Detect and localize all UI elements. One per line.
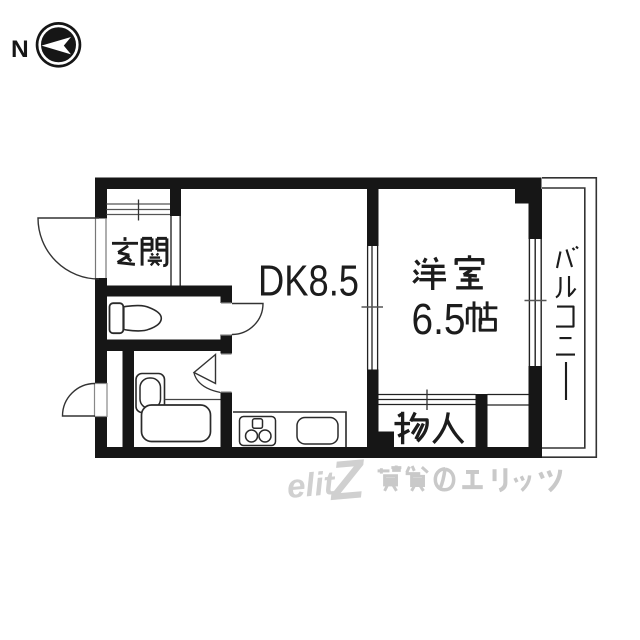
svg-text:N: N <box>11 36 29 63</box>
svg-text:DK8.5: DK8.5 <box>258 257 359 306</box>
svg-text:6.5: 6.5 <box>412 296 466 344</box>
